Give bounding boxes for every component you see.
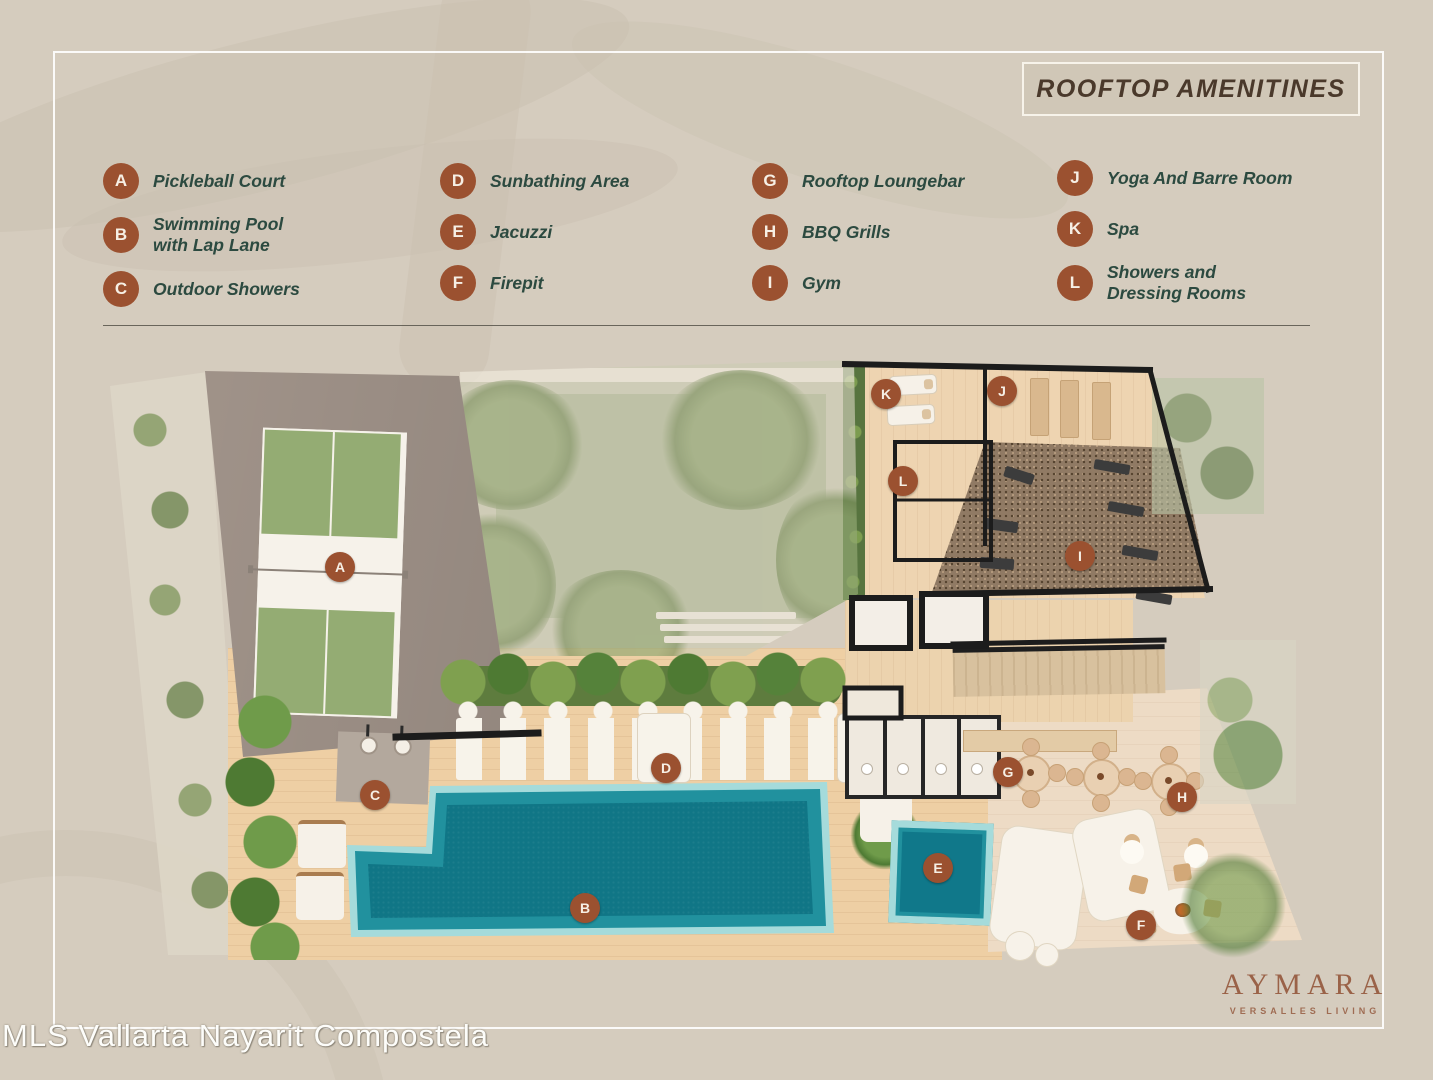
legend-label-E: Jacuzzi <box>490 222 552 243</box>
legend-badge-H: H <box>752 214 788 250</box>
legend-badge-F: F <box>440 265 476 301</box>
legend-item-E: EJacuzzi <box>440 214 629 250</box>
legend-label-G: Rooftop Loungebar <box>802 171 964 192</box>
brand-tagline: VERSALLES LIVING <box>1215 1006 1395 1016</box>
legend-column-2: DSunbathing AreaEJacuzziFFirepit <box>440 163 629 301</box>
legend-badge-I: I <box>752 265 788 301</box>
yoga-mat <box>1030 378 1049 436</box>
plan-marker-G: G <box>993 757 1023 787</box>
legend-item-C: COutdoor Showers <box>103 271 300 307</box>
legend-badge-B: B <box>103 217 139 253</box>
gym-equipment <box>980 557 1015 570</box>
garden-steps <box>656 612 796 619</box>
planter-faded <box>1200 640 1296 804</box>
legend-badge-D: D <box>440 163 476 199</box>
legend-badge-K: K <box>1057 211 1093 247</box>
cabana-daybed <box>296 872 344 920</box>
legend-item-L: LShowers and Dressing Rooms <box>1057 262 1292 304</box>
legend-divider <box>103 325 1310 326</box>
legend-badge-E: E <box>440 214 476 250</box>
legend-label-K: Spa <box>1107 219 1139 240</box>
plan-marker-A: A <box>325 552 355 582</box>
title-box: ROOFTOP AMENITINES <box>1022 62 1360 116</box>
legend-item-J: JYoga And Barre Room <box>1057 160 1292 196</box>
plan-marker-D: D <box>651 753 681 783</box>
plan-marker-B: B <box>570 893 600 923</box>
legend-badge-G: G <box>752 163 788 199</box>
legend-item-H: HBBQ Grills <box>752 214 964 250</box>
plan-marker-L: L <box>888 466 918 496</box>
legend-badge-L: L <box>1057 265 1093 301</box>
legend-label-B: Swimming Pool with Lap Lane <box>153 214 283 256</box>
legend-item-B: BSwimming Pool with Lap Lane <box>103 214 300 256</box>
legend-column-1: APickleball CourtBSwimming Pool with Lap… <box>103 163 300 307</box>
garden-steps <box>660 624 810 631</box>
planter-faded <box>1152 378 1264 514</box>
palm-tree <box>656 370 826 510</box>
legend-item-A: APickleball Court <box>103 163 300 199</box>
legend-label-F: Firepit <box>490 273 543 294</box>
palm-tree-faded <box>1178 850 1288 960</box>
plan-marker-J: J <box>987 376 1017 406</box>
plan-marker-I: I <box>1065 541 1095 571</box>
legend-label-A: Pickleball Court <box>153 171 285 192</box>
legend-badge-J: J <box>1057 160 1093 196</box>
pouf <box>1006 932 1034 960</box>
shower-pole <box>366 724 369 736</box>
plan-marker-C: C <box>360 780 390 810</box>
garden-steps <box>664 636 824 643</box>
legend-item-F: FFirepit <box>440 265 629 301</box>
shower-head <box>359 736 378 755</box>
plan-marker-F: F <box>1126 910 1156 940</box>
legend-item-D: DSunbathing Area <box>440 163 629 199</box>
legend-label-J: Yoga And Barre Room <box>1107 168 1292 189</box>
cabana-daybed <box>298 820 346 868</box>
legend-item-I: IGym <box>752 265 964 301</box>
shower-head <box>393 737 412 756</box>
legend-label-C: Outdoor Showers <box>153 279 300 300</box>
page-title: ROOFTOP AMENITINES <box>1036 75 1345 104</box>
court-half <box>261 430 401 539</box>
garden-courtyard <box>456 360 858 656</box>
legend-label-L: Showers and Dressing Rooms <box>1107 262 1246 304</box>
legend-item-G: GRooftop Loungebar <box>752 163 964 199</box>
yoga-mat <box>1060 380 1079 438</box>
plan-marker-E: E <box>923 853 953 883</box>
legend-badge-C: C <box>103 271 139 307</box>
brand-logo: AYMARA VERSALLES LIVING <box>1215 968 1395 1016</box>
massage-table <box>888 405 935 425</box>
bbq-pergola <box>953 644 1166 697</box>
pool-bathrooms <box>845 715 1001 799</box>
legend-label-I: Gym <box>802 273 841 294</box>
brand-name: AYMARA <box>1215 968 1395 1002</box>
pouf <box>1036 944 1058 966</box>
shower-pole <box>400 726 403 738</box>
legend-item-K: KSpa <box>1057 211 1292 247</box>
palm-column <box>220 692 310 960</box>
plan-marker-K: K <box>871 379 901 409</box>
legend-badge-A: A <box>103 163 139 199</box>
yoga-mat <box>1092 382 1111 440</box>
plan-marker-H: H <box>1167 782 1197 812</box>
rooftop-floor-plan: ABCDEFGHIJKL <box>108 352 1300 964</box>
dining-set <box>1066 742 1134 810</box>
mls-watermark: MLS Vallarta Nayarit Compostela <box>2 1018 489 1054</box>
legend-column-3: GRooftop LoungebarHBBQ GrillsIGym <box>752 163 964 301</box>
chair-table-set <box>1120 840 1144 864</box>
legend-label-H: BBQ Grills <box>802 222 891 243</box>
legend-label-D: Sunbathing Area <box>490 171 629 192</box>
legend-column-4: JYoga And Barre RoomKSpaLShowers and Dre… <box>1057 160 1292 304</box>
